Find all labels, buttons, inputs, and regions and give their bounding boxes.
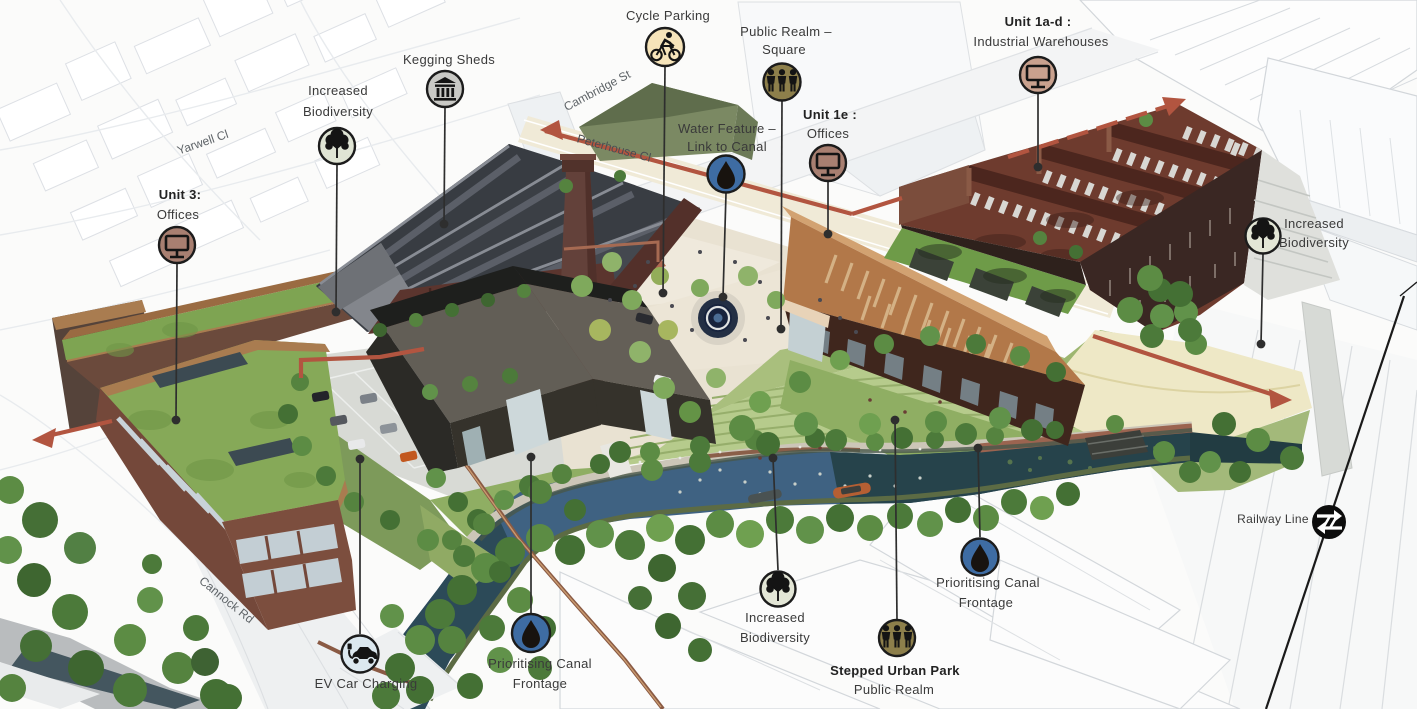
svg-text:Public Realm: Public Realm <box>854 682 934 697</box>
svg-text:Unit 1e :: Unit 1e : <box>803 107 857 122</box>
svg-text:Frontage: Frontage <box>513 676 567 691</box>
svg-text:Biodiversity: Biodiversity <box>1279 235 1349 250</box>
svg-text:Offices: Offices <box>807 126 850 141</box>
svg-text:Railway Line: Railway Line <box>1237 512 1309 526</box>
svg-text:Offices: Offices <box>157 207 200 222</box>
svg-text:Biodiversity: Biodiversity <box>740 630 810 645</box>
svg-text:EV Car Charging: EV Car Charging <box>315 676 418 691</box>
svg-text:Stepped Urban Park: Stepped Urban Park <box>830 663 960 678</box>
svg-text:Increased: Increased <box>308 83 368 98</box>
svg-text:Unit 3:: Unit 3: <box>159 187 202 202</box>
svg-text:Biodiversity: Biodiversity <box>303 104 373 119</box>
svg-text:Cycle Parking: Cycle Parking <box>626 8 710 23</box>
svg-text:Public Realm –: Public Realm – <box>740 24 832 39</box>
svg-text:Square: Square <box>762 42 806 57</box>
svg-text:Frontage: Frontage <box>959 595 1013 610</box>
svg-text:Unit 1a-d :: Unit 1a-d : <box>1005 14 1072 29</box>
svg-text:Prioritising Canal: Prioritising Canal <box>936 575 1040 590</box>
svg-text:Increased: Increased <box>745 610 805 625</box>
svg-text:Prioritising Canal: Prioritising Canal <box>488 656 592 671</box>
svg-text:Kegging Sheds: Kegging Sheds <box>403 52 495 67</box>
svg-text:Water Feature –: Water Feature – <box>678 121 776 136</box>
svg-text:Industrial Warehouses: Industrial Warehouses <box>973 34 1108 49</box>
svg-text:Increased: Increased <box>1284 216 1344 231</box>
svg-text:Link to Canal: Link to Canal <box>687 139 767 154</box>
